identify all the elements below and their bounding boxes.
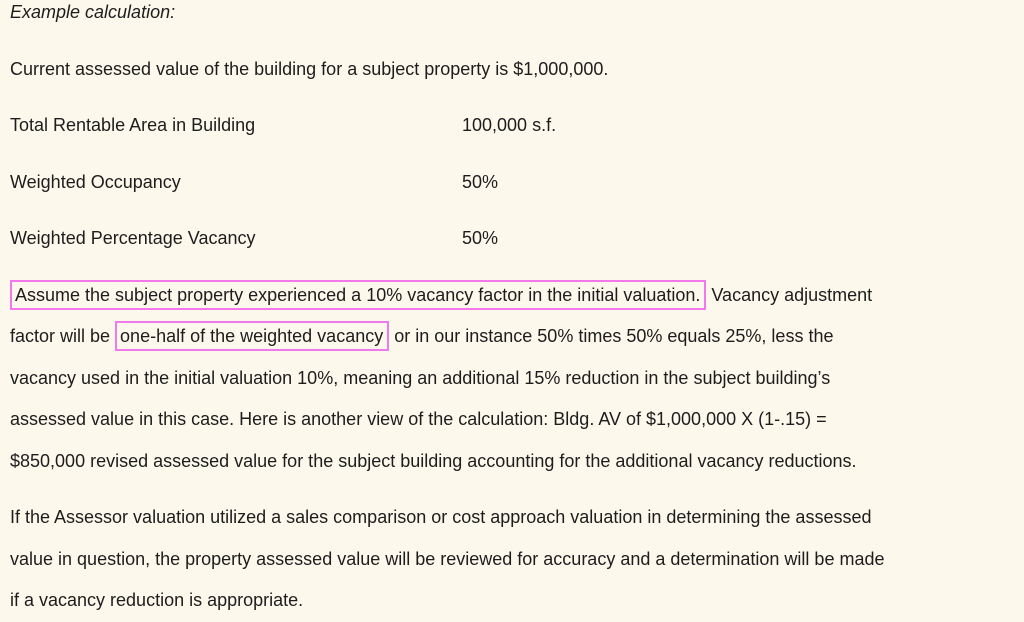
text-line: vacancy used in the initial valuation 10… bbox=[10, 358, 1010, 400]
text-segment: Vacancy adjustment bbox=[706, 285, 872, 305]
text-line: If the Assessor valuation utilized a sal… bbox=[10, 497, 1010, 539]
text-segment: or in our instance 50% times 50% equals … bbox=[389, 326, 833, 346]
fact-value-rentable-area: 100,000 s.f. bbox=[462, 105, 556, 147]
calculation-paragraph: Assume the subject property experienced … bbox=[10, 275, 1010, 483]
document-body: Example calculation: Current assessed va… bbox=[0, 0, 1024, 622]
fact-row-rentable-area: Total Rentable Area in Building 100,000 … bbox=[10, 105, 1010, 147]
text-segment: vacancy used in the initial valuation 10… bbox=[10, 368, 830, 388]
fact-value-weighted-occupancy: 50% bbox=[462, 162, 498, 204]
text-line: assessed value in this case. Here is ano… bbox=[10, 399, 1010, 441]
text-line: value in question, the property assessed… bbox=[10, 539, 1010, 581]
text-line: factor will be one-half of the weighted … bbox=[10, 316, 1010, 358]
text-line: $850,000 revised assessed value for the … bbox=[10, 441, 1010, 483]
text-segment: assessed value in this case. Here is ano… bbox=[10, 409, 827, 429]
text-segment: factor will be bbox=[10, 326, 115, 346]
highlight-box: Assume the subject property experienced … bbox=[10, 280, 706, 310]
example-calculation-heading: Example calculation: bbox=[10, 0, 1010, 34]
fact-row-weighted-percentage-vacancy: Weighted Percentage Vacancy 50% bbox=[10, 218, 1010, 260]
fact-label-weighted-percentage-vacancy: Weighted Percentage Vacancy bbox=[10, 218, 462, 260]
text-line: Assume the subject property experienced … bbox=[10, 275, 1010, 317]
assessor-paragraph: If the Assessor valuation utilized a sal… bbox=[10, 497, 1010, 622]
text-line: if a vacancy reduction is appropriate. bbox=[10, 580, 1010, 622]
text-segment: If the Assessor valuation utilized a sal… bbox=[10, 507, 871, 527]
highlight-box: one-half of the weighted vacancy bbox=[115, 321, 389, 351]
fact-label-rentable-area: Total Rentable Area in Building bbox=[10, 105, 462, 147]
text-segment: value in question, the property assessed… bbox=[10, 549, 884, 569]
fact-row-weighted-occupancy: Weighted Occupancy 50% bbox=[10, 162, 1010, 204]
fact-value-weighted-percentage-vacancy: 50% bbox=[462, 218, 498, 260]
text-segment: if a vacancy reduction is appropriate. bbox=[10, 590, 303, 610]
fact-label-weighted-occupancy: Weighted Occupancy bbox=[10, 162, 462, 204]
intro-paragraph: Current assessed value of the building f… bbox=[10, 49, 1010, 91]
text-segment: $850,000 revised assessed value for the … bbox=[10, 451, 857, 471]
